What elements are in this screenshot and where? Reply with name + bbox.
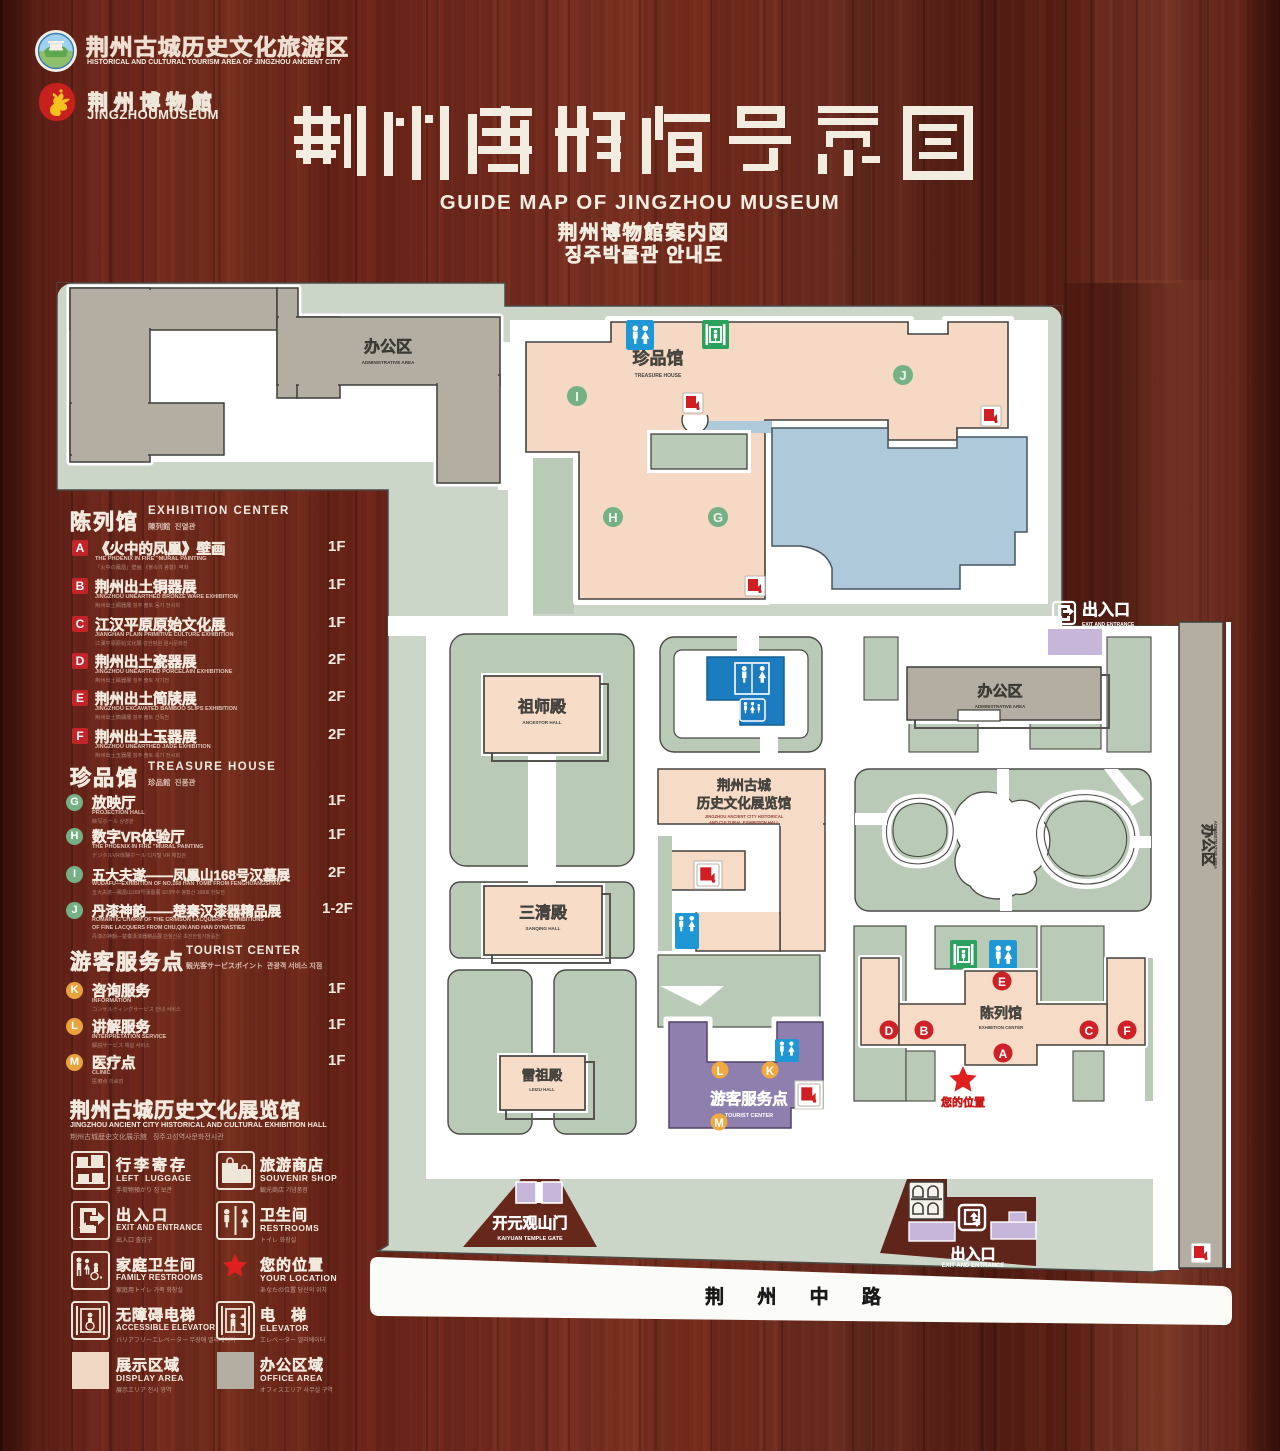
svg-text:I: I [575,389,579,404]
svg-text:祖师殿: 祖师殿 [517,697,567,716]
svg-text:游客服务点: 游客服务点 [710,1089,788,1108]
svg-text:TREASURE HOUSE: TREASURE HOUSE [635,373,682,379]
svg-text:ANCESTOR HALL: ANCESTOR HALL [522,720,561,725]
svg-text:珍品馆: 珍品馆 [633,348,684,368]
svg-text:SANQING HALL: SANQING HALL [526,926,561,931]
svg-text:出入口: 出入口 [950,1245,995,1263]
svg-text:雷祖殿: 雷祖殿 [522,1067,563,1083]
svg-text:开元观山门: 开元观山门 [492,1214,567,1232]
svg-text:D: D [885,1024,894,1038]
svg-text:出入口: 出入口 [1082,600,1130,619]
svg-text:H: H [608,510,617,525]
svg-text:办公区: 办公区 [364,337,412,356]
svg-text:M: M [714,1118,724,1130]
svg-text:荆州古城: 荆州古城 [717,777,771,793]
svg-text:您的位置: 您的位置 [941,1095,985,1109]
svg-text:办公区: 办公区 [977,682,1022,700]
svg-text:A: A [999,1047,1008,1061]
svg-text:三清殿: 三清殿 [519,904,568,922]
svg-text:K: K [766,1066,775,1078]
svg-text:历史文化展览馆: 历史文化展览馆 [697,795,792,811]
svg-text:EXIT AND ENTRANCE: EXIT AND ENTRANCE [942,1263,1005,1269]
svg-text:G: G [713,510,723,525]
svg-text:E: E [998,975,1006,989]
svg-text:KAIYUAN TEMPLE GATE: KAIYUAN TEMPLE GATE [497,1236,563,1242]
svg-text:B: B [920,1024,929,1038]
svg-text:ADMINISTRATIVE AREA: ADMINISTRATIVE AREA [975,704,1026,709]
svg-text:荆 州 中 路: 荆 州 中 路 [705,1285,895,1308]
svg-text:J: J [899,368,906,383]
svg-text:L: L [716,1066,723,1078]
svg-text:EXIT AND ENTRANCE: EXIT AND ENTRANCE [1082,622,1135,628]
svg-text:F: F [1123,1024,1130,1038]
svg-text:ADMINISTRATIVE AREA: ADMINISTRATIVE AREA [1213,821,1218,869]
svg-text:TOURIST CENTER: TOURIST CENTER [725,1113,773,1119]
svg-text:EXHIBITION CENTER: EXHIBITION CENTER [979,1025,1024,1030]
svg-text:陈列馆: 陈列馆 [980,1005,1022,1021]
svg-text:ADMINISTRATIVE AREA: ADMINISTRATIVE AREA [362,360,416,365]
svg-text:C: C [1085,1024,1094,1038]
svg-text:JINGZHOU ANCIENT CITY HISTORIC: JINGZHOU ANCIENT CITY HISTORICAL [705,814,784,819]
svg-text:LEIZU HALL: LEIZU HALL [529,1087,555,1092]
svg-text:AND CULTURAL EXHIBITION HALL: AND CULTURAL EXHIBITION HALL [709,820,780,825]
